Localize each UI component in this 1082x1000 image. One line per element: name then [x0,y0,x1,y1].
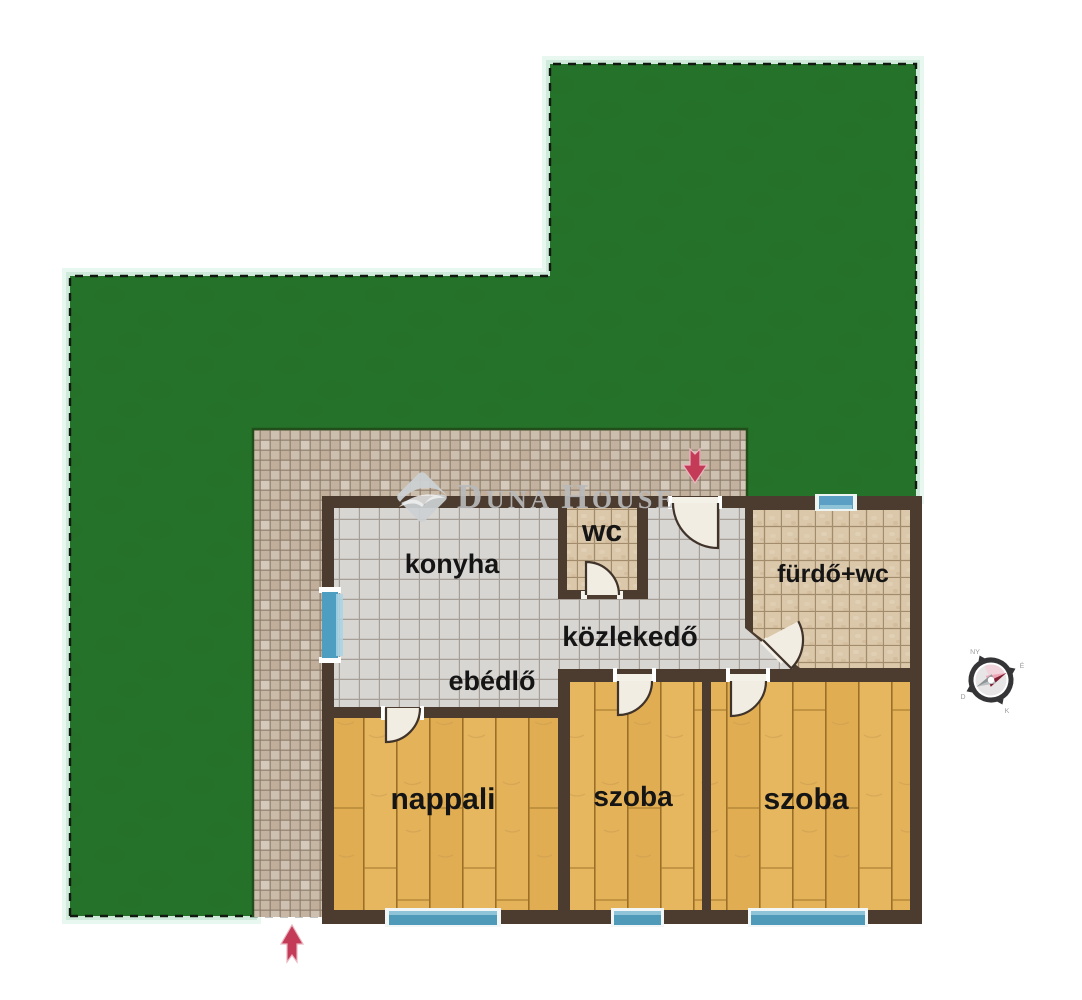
svg-text:K: K [1005,708,1010,715]
svg-text:ebédlő: ebédlő [448,666,535,696]
svg-text:konyha: konyha [405,549,501,579]
svg-text:wc: wc [581,515,622,548]
svg-text:szoba: szoba [593,781,673,812]
svg-text:NY: NY [970,649,980,656]
svg-text:É: É [1020,661,1025,670]
svg-text:szoba: szoba [763,783,848,816]
svg-text:D: D [960,694,965,701]
svg-text:fürdő+wc: fürdő+wc [777,560,889,588]
svg-text:közlekedő: közlekedő [562,621,697,652]
svg-text:nappali: nappali [390,783,495,816]
